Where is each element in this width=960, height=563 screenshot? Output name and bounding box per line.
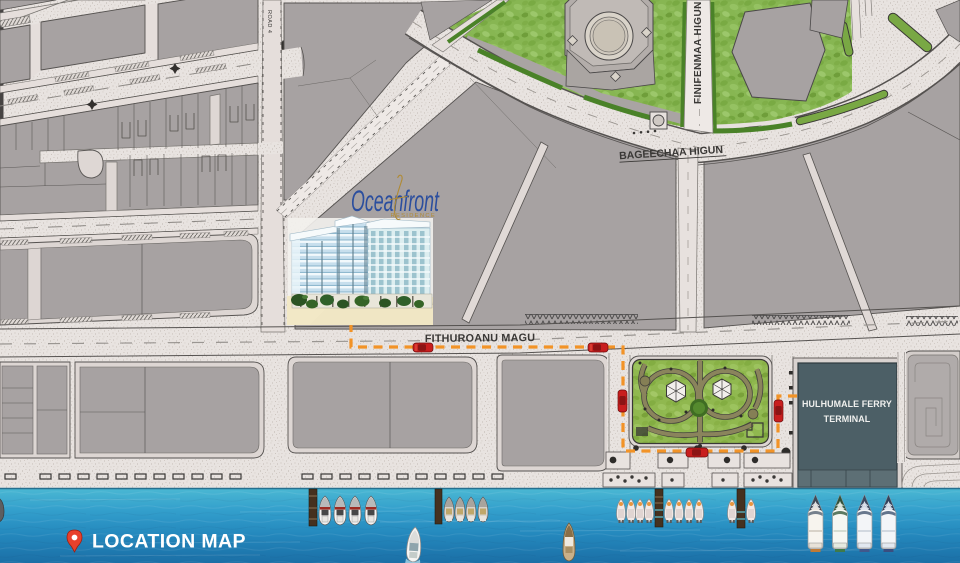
svg-text:ROAD 4: ROAD 4 bbox=[266, 10, 272, 33]
svg-text:LOCATION MAP: LOCATION MAP bbox=[92, 531, 246, 553]
svg-text:HULHUMALE FERRY: HULHUMALE FERRY bbox=[802, 399, 892, 409]
svg-text:FITHUROANU MAGU: FITHUROANU MAGU bbox=[425, 332, 535, 345]
svg-text:TERMINAL: TERMINAL bbox=[824, 414, 871, 424]
svg-text:FINIFENMAA HIGUN: FINIFENMAA HIGUN bbox=[693, 1, 704, 104]
svg-text:RESIDENCE: RESIDENCE bbox=[390, 213, 436, 219]
